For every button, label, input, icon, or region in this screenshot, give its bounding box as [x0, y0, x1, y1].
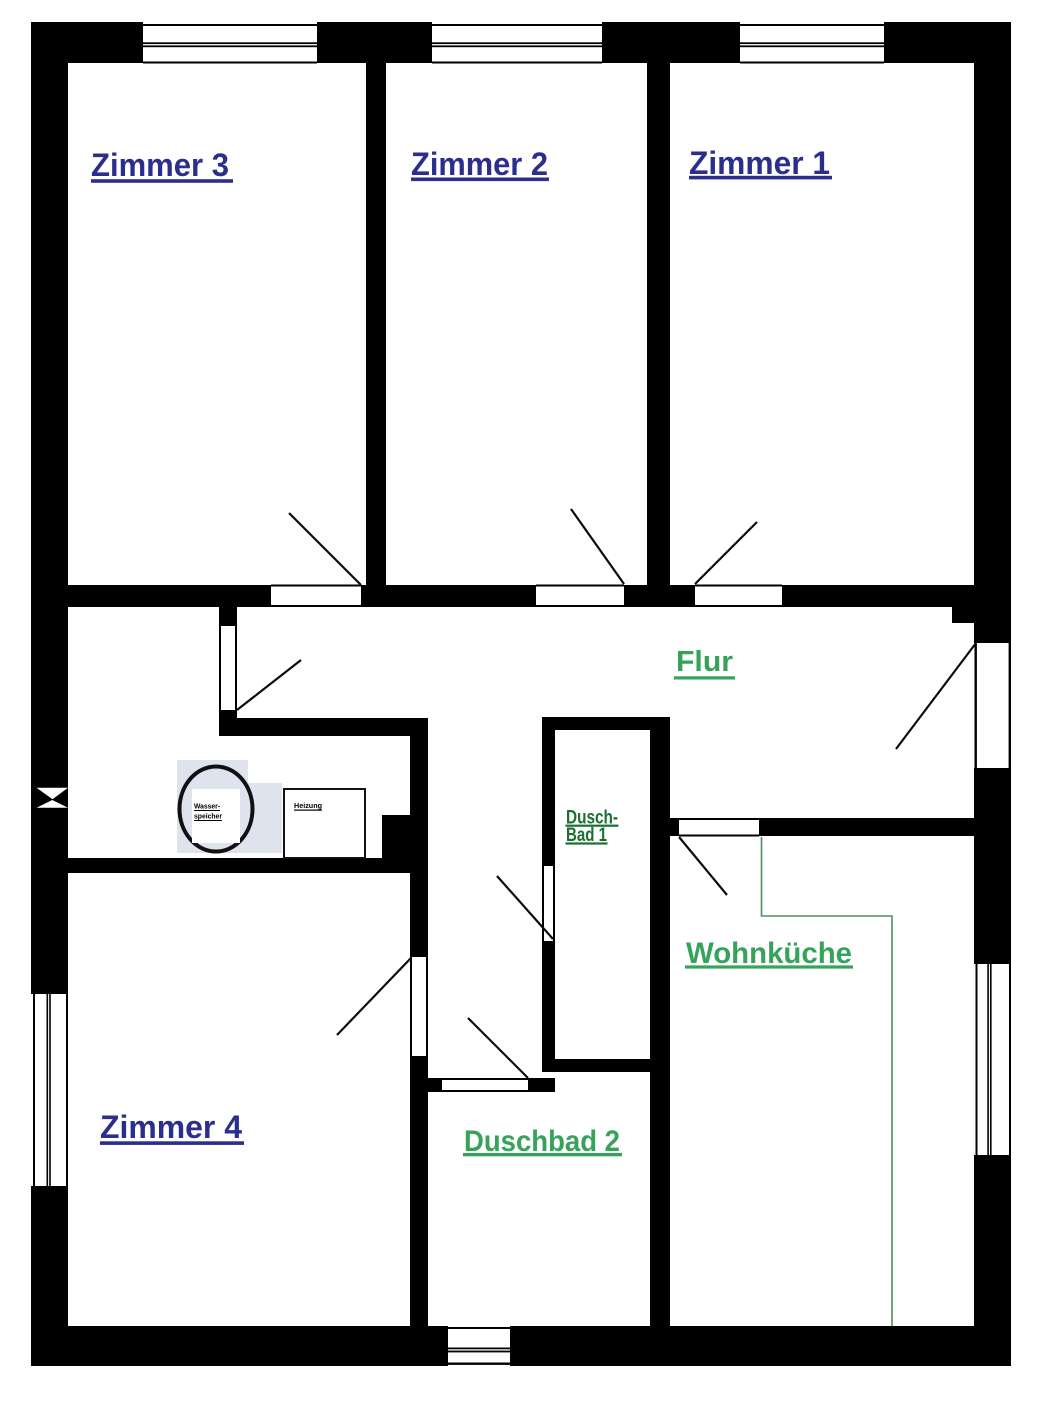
svg-text:Zimmer 4: Zimmer 4: [100, 1109, 242, 1145]
svg-text:Heizung: Heizung: [294, 803, 322, 810]
svg-text:Zimmer 2: Zimmer 2: [411, 146, 548, 182]
svg-text:Wohnküche: Wohnküche: [686, 937, 852, 970]
svg-text:Zimmer 1: Zimmer 1: [689, 145, 830, 181]
svg-text:speicher: speicher: [194, 814, 222, 821]
svg-text:Zimmer 3: Zimmer 3: [91, 147, 229, 183]
svg-text:Flur: Flur: [676, 646, 733, 678]
svg-text:Wasser-: Wasser-: [194, 804, 221, 811]
